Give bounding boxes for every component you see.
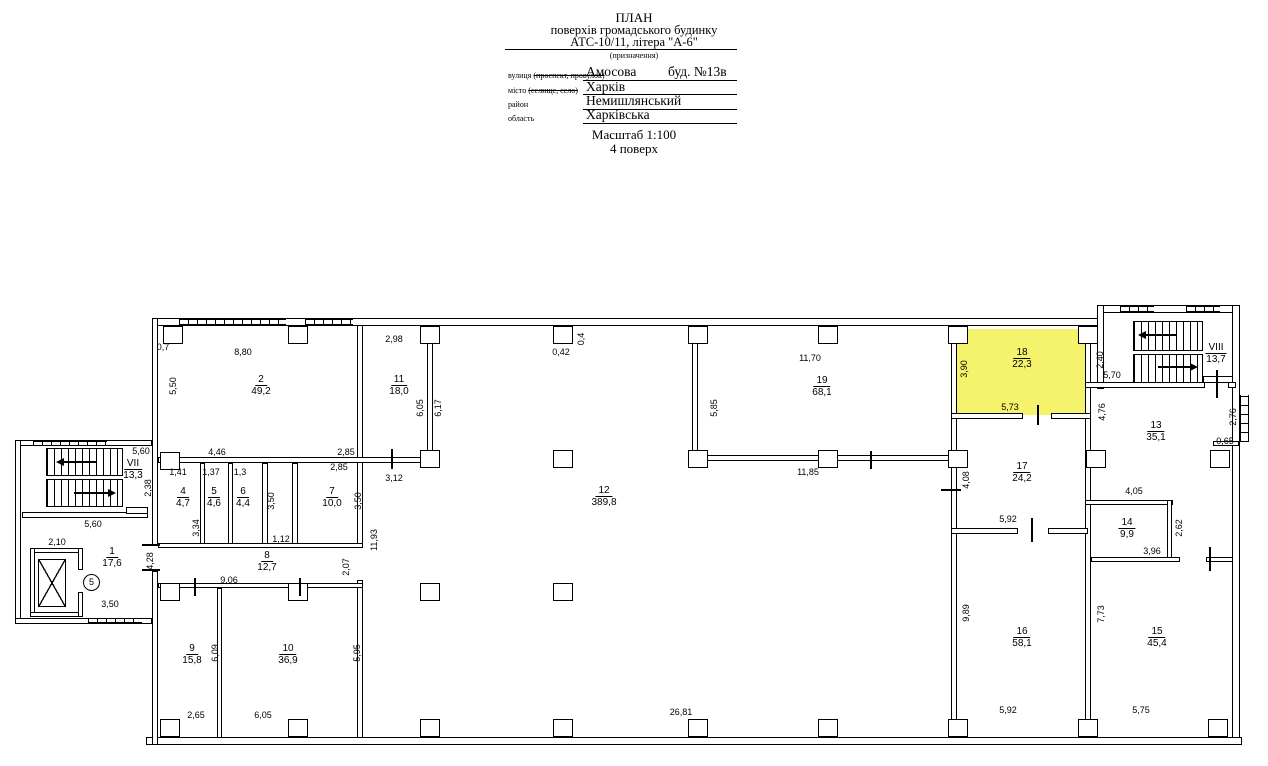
- tick: [194, 578, 196, 596]
- room-label-1: 117,6: [102, 546, 121, 569]
- dim-label: 5,70: [1103, 370, 1121, 380]
- room-label-2: 249,2: [251, 374, 270, 397]
- column: [160, 719, 180, 737]
- room-label-5: 54,6: [207, 486, 221, 509]
- wall: [357, 325, 363, 547]
- room-label-VIII: VIII13,7: [1205, 342, 1226, 365]
- field-value-region: Харківська: [586, 107, 650, 123]
- dim-label: 3,50: [101, 599, 119, 609]
- column: [1078, 719, 1098, 737]
- column: [1086, 450, 1106, 468]
- dim-label: 2,38: [143, 479, 153, 497]
- underline: [583, 123, 737, 124]
- dim-label: 0,42: [552, 347, 570, 357]
- room-label-19: 1968,1: [812, 375, 831, 398]
- dim-label: 0,7: [157, 342, 170, 352]
- window: [179, 319, 286, 325]
- wall: [152, 318, 1104, 326]
- room-label-6: 64,4: [236, 486, 250, 509]
- stair-arrow-head: [108, 489, 120, 497]
- field-value-street: Амосова: [586, 64, 636, 80]
- column: [688, 719, 708, 737]
- dim-label: 5,50: [168, 377, 178, 395]
- stair-arrow: [1158, 366, 1192, 368]
- tick: [299, 578, 301, 596]
- door: [126, 507, 148, 514]
- wall: [217, 588, 222, 738]
- wall: [1085, 500, 1173, 505]
- dim-label: 4,46: [208, 447, 226, 457]
- dim-label: 5,92: [999, 705, 1017, 715]
- column: [288, 719, 308, 737]
- dim-label: 2,85: [337, 447, 355, 457]
- wall: [146, 737, 1242, 745]
- column: [553, 450, 573, 468]
- column: [420, 450, 440, 468]
- column: [948, 719, 968, 737]
- room-label-15: 1545,4: [1147, 626, 1166, 649]
- dim-label: 2,65: [187, 710, 205, 720]
- wall: [1167, 500, 1172, 562]
- page-subtitle-2: АТС-10/11, літера "А-6": [0, 35, 1268, 50]
- wall: [951, 413, 1023, 419]
- wall: [292, 463, 298, 545]
- dim-label: 1,37: [202, 467, 220, 477]
- column: [553, 326, 573, 344]
- dim-label: 2,07: [341, 558, 351, 576]
- wall: [1232, 305, 1240, 745]
- tick: [1037, 405, 1039, 425]
- dim-label: 2,10: [48, 537, 66, 547]
- tick: [941, 489, 961, 491]
- wall: [152, 318, 158, 546]
- dim-label: 4,28: [145, 552, 155, 570]
- dim-label: 9,89: [961, 604, 971, 622]
- window: [88, 618, 142, 623]
- dim-label: 9,06: [220, 575, 238, 585]
- dim-label: 6,17: [433, 399, 443, 417]
- dim-label: 11,70: [799, 353, 821, 363]
- field-label-city: місто (селище, село): [508, 86, 578, 95]
- wall: [30, 548, 35, 617]
- dim-label: 2,76: [1228, 408, 1238, 426]
- dim-label: 1,41: [169, 467, 187, 477]
- wall: [78, 548, 83, 570]
- column: [553, 719, 573, 737]
- dim-label: 5,92: [999, 514, 1017, 524]
- door: [1203, 376, 1233, 383]
- dim-label: 5,60: [132, 446, 150, 456]
- dim-label: 2,85: [330, 462, 348, 472]
- column: [1078, 326, 1098, 344]
- stair-arrow: [1142, 334, 1176, 336]
- field-label-district: район: [508, 100, 528, 109]
- wall: [30, 612, 83, 617]
- column: [420, 326, 440, 344]
- window: [1120, 306, 1154, 312]
- dim-label: 6,05: [415, 399, 425, 417]
- stair-arrow-head: [52, 458, 64, 466]
- column: [1210, 450, 1230, 468]
- tick: [1216, 370, 1218, 398]
- room-label-17: 1724,2: [1012, 461, 1031, 484]
- elevator-cab: [38, 559, 66, 607]
- dim-label: 0,4: [576, 333, 586, 346]
- wall: [78, 592, 83, 617]
- dim-label: 2,40: [1095, 351, 1105, 369]
- room-label-10: 1036,9: [278, 643, 297, 666]
- field-label-region: область: [508, 114, 534, 123]
- column: [688, 450, 708, 468]
- stair-arrow-head: [1190, 363, 1202, 371]
- dim-label: 1,3: [234, 467, 247, 477]
- floor-plan-page: ПЛАН поверхів громадського будинку АТС-1…: [0, 0, 1268, 766]
- wall: [951, 528, 1018, 534]
- room-label-7: 710,0: [322, 486, 341, 509]
- column: [688, 326, 708, 344]
- dim-label: 5,73: [1001, 402, 1019, 412]
- dim-label: 26,81: [670, 707, 693, 717]
- wall: [1048, 528, 1088, 534]
- dim-label: 11,85: [797, 467, 819, 477]
- room-18-highlight[interactable]: [955, 329, 1087, 415]
- room-label-18: 1822,3: [1012, 347, 1031, 370]
- tick: [142, 544, 160, 546]
- column: [948, 450, 968, 468]
- dim-label: 2,62: [1174, 519, 1184, 537]
- column: [420, 583, 440, 601]
- column: [1208, 719, 1228, 737]
- window: [1240, 395, 1249, 442]
- room-label-14: 149,9: [1118, 517, 1135, 540]
- dim-label: 4,08: [961, 471, 971, 489]
- floor-label: 4 поверх: [0, 141, 1268, 157]
- stair-arrow-head: [1134, 331, 1146, 339]
- dim-label: 3,12: [385, 473, 403, 483]
- column: [818, 326, 838, 344]
- room-label-4: 44,7: [176, 486, 190, 509]
- wall: [152, 571, 158, 745]
- column: [948, 326, 968, 344]
- column: [160, 583, 180, 601]
- dim-label: 3,50: [353, 492, 363, 510]
- dim-label: 7,73: [1096, 605, 1106, 623]
- purpose-note: (призначення): [0, 51, 1268, 60]
- window: [1186, 306, 1220, 312]
- tick: [391, 449, 393, 469]
- dim-label: 1,12: [272, 534, 290, 544]
- wall: [158, 543, 363, 548]
- dim-label: 5,95: [352, 644, 362, 662]
- tick: [1209, 547, 1211, 571]
- tick: [870, 451, 872, 469]
- column: [818, 450, 838, 468]
- dim-label: 5,60: [84, 519, 102, 529]
- dim-label: 5,85: [709, 399, 719, 417]
- room-label-VII: VII13,3: [123, 458, 142, 481]
- window: [33, 441, 107, 446]
- wall: [30, 548, 83, 553]
- room-label-8: 812,7: [257, 550, 276, 573]
- dim-label: 5,75: [1132, 705, 1150, 715]
- dim-label: 3,96: [1143, 546, 1161, 556]
- wall: [1091, 557, 1180, 562]
- room-label-16: 1658,1: [1012, 626, 1031, 649]
- column: [818, 719, 838, 737]
- dim-label: 3,34: [191, 519, 201, 537]
- dim-label: 6,09: [210, 644, 220, 662]
- column: [288, 583, 308, 601]
- dim-label: 6,05: [254, 710, 272, 720]
- dim-label: 3,50: [266, 492, 276, 510]
- room-label-13: 1335,1: [1146, 420, 1165, 443]
- column: [288, 326, 308, 344]
- wall: [692, 343, 698, 455]
- wall: [1051, 413, 1091, 419]
- column: [553, 583, 573, 601]
- wall: [228, 463, 233, 545]
- dim-label: 11,93: [369, 529, 379, 551]
- divider: [505, 49, 737, 50]
- room-label-11: 1118,0: [389, 374, 408, 397]
- dim-label: 4,76: [1097, 403, 1107, 421]
- dim-label: 4,05: [1125, 486, 1143, 496]
- tick: [1031, 518, 1033, 542]
- dim-label: 0,65: [1216, 436, 1234, 446]
- stair-arrow: [60, 461, 96, 463]
- room-label-9: 915,8: [182, 643, 201, 666]
- wall: [158, 583, 363, 588]
- dim-label: 3,90: [959, 360, 969, 378]
- field-value-building: буд. №13в: [668, 64, 727, 80]
- dim-label: 8,80: [234, 347, 252, 357]
- circle-marker: 5: [83, 574, 100, 591]
- column: [420, 719, 440, 737]
- window: [305, 319, 353, 325]
- dim-label: 2,98: [385, 334, 403, 344]
- room-label-12: 12389,8: [591, 485, 616, 508]
- wall: [15, 440, 21, 624]
- stair-arrow: [74, 492, 110, 494]
